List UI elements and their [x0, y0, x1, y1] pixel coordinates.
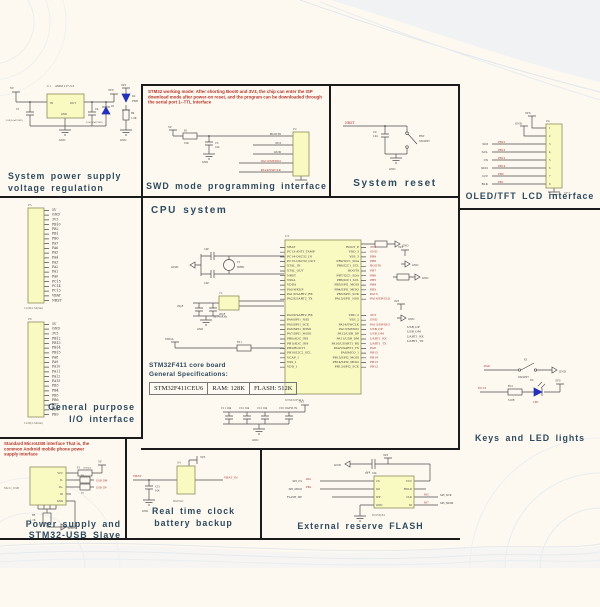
pin-label-swdio: PA13/SWDIO: [261, 159, 281, 163]
ref-des-u2: U2: [285, 234, 290, 238]
net-label-vbat: VBAT: [132, 474, 141, 478]
ref-des-u1: U1: [47, 84, 51, 88]
keys-wires: [480, 363, 564, 396]
value-c7: 20pF: [177, 305, 184, 308]
swd-connector: [293, 132, 309, 176]
net-label-5v: 5V: [168, 125, 173, 129]
ref-des-p5: P5: [28, 203, 32, 207]
panel-external-flash: GND C17 104 3V3 U4 W25Q32 CS SO WP GND V…: [262, 450, 459, 540]
crystal-8mhz: [224, 260, 235, 271]
net-label: PB14: [498, 164, 505, 168]
net-label-usb-dp: USB_DP: [96, 487, 107, 490]
pin-label-vcc: VCC: [405, 479, 412, 483]
gnd-label: GND: [389, 167, 395, 171]
usb-uart-net-labels: USB_DPUSB_DMUART1_RXUART1_TX: [407, 325, 452, 381]
ref-des-u4: U4: [366, 470, 370, 474]
label-led: LED: [533, 401, 538, 404]
net-label-vdda: VDDA: [164, 337, 175, 341]
value-c8: 20pF: [219, 313, 226, 316]
pin-label-out: OUT: [70, 101, 76, 105]
pin-label-clk: CLK: [406, 495, 412, 499]
power-panel-title-line2: voltage regulation: [8, 183, 104, 195]
pin-label-3v3: 3V3: [275, 141, 281, 145]
net-label: PB0: [498, 172, 504, 176]
gnd-label: GND: [412, 263, 418, 267]
net-label-pb4: PB4: [306, 486, 311, 489]
panel-divider: [329, 84, 331, 198]
panel-gpio-interface: P5 P6 1x20(2.54mm) 1x20(2.54mm) 5VGND3V3…: [0, 198, 141, 437]
reset-panel-title: System reset: [331, 178, 459, 190]
pin-label-dp: D+: [59, 486, 63, 489]
panel-divider: [141, 84, 143, 438]
ref-des-rst: RST: [419, 134, 425, 138]
net-label-pa0: PA0: [484, 364, 490, 368]
net-label: PB12: [370, 365, 410, 370]
gpio-wires: [44, 210, 49, 414]
ref-des-r5: R5: [32, 514, 36, 517]
pin-label-sdi: SDI: [482, 142, 488, 146]
ref-des-c1: C1: [16, 108, 20, 111]
net-label: PB13: [498, 148, 505, 152]
crystal-32khz: [219, 296, 239, 310]
gnd-label: GND: [59, 138, 65, 142]
lcd-panel-title: OLED/TFT LCD interface: [460, 191, 600, 203]
net-label: PB1: [498, 180, 504, 184]
usb-panel-title-line1: Power supply and: [26, 519, 121, 531]
net-label-spi-miso: SPI_MISO: [289, 487, 302, 491]
ref-des-r3: R3: [81, 492, 85, 495]
value-c1: 106(10uF/16V): [6, 119, 23, 122]
swd-wires: [169, 130, 307, 182]
value-c15: 104: [155, 490, 160, 493]
pin-label-sdo: SDO: [481, 166, 488, 170]
spec-cell: RAM: 128K: [208, 382, 250, 395]
label-pwr: PWR: [132, 100, 138, 103]
value-c5: 10P: [204, 248, 209, 251]
gpio-panel-title-line1: General purpose: [48, 402, 135, 414]
net-label-spi-sck: SPI_SCK: [440, 493, 452, 497]
swd-panel-title: SWD mode programming interface: [143, 181, 330, 193]
ref-des-c3: C3: [215, 142, 219, 145]
panel-divider: [0, 196, 460, 198]
panel-divider: [125, 437, 127, 540]
pin-label: PB13/SPI2_SCK: [289, 365, 359, 370]
keys-panel-title: Keys and LED lights: [460, 433, 600, 445]
protection-diode: [102, 107, 110, 114]
ref-des-r11: R11: [237, 341, 242, 344]
ref-des-d4: D4: [177, 461, 181, 465]
lcd-circuit: P4 3V3 GND SDI SCL CS SDO D/C BLK PB15 P…: [460, 88, 600, 200]
value-c17: 104: [372, 472, 377, 475]
panel-system-reset: NRST C9 104 RST SW-SPST GND System reset: [331, 86, 459, 196]
pin-label-scl: SCL: [482, 150, 488, 154]
connector-type-label: 1x20(2.54mm): [24, 306, 43, 310]
panel-usb-power: Standard MicroUSB interface That is, the…: [0, 439, 125, 540]
ref-des-y2: Y2: [218, 291, 223, 295]
value-c9: 104: [373, 135, 378, 138]
pin-label-swclk: PA14/SWCLK: [261, 168, 282, 172]
ref-des-f1: F1: [77, 467, 81, 470]
panel-divider: [141, 448, 460, 450]
net-label-3v3: 3V3: [383, 453, 389, 457]
net-label: PB12: [498, 156, 505, 160]
part-bat54c: BAT54C: [173, 499, 184, 503]
cap-label: C13 104: [257, 407, 268, 410]
net-label-3v3: 3V3: [555, 379, 561, 383]
value-8mhz: 8MHz: [237, 266, 245, 269]
panel-cpu-system: U2 STM32F411 GND 10P 10P Y1 8MHz Y2 32.7…: [143, 198, 459, 448]
panel-divider: [0, 538, 460, 540]
bat54c-diode: [177, 466, 195, 494]
gpio-panel-title-line2: I/O interface: [69, 414, 135, 426]
panel-divider: [458, 208, 600, 210]
ref-des-d3: D3: [530, 379, 534, 382]
spec-cell: STM32F411CEU6: [149, 382, 208, 395]
pin-label-gnd: GND: [274, 150, 282, 154]
pin-label-dm: D-: [60, 479, 63, 482]
pin-label-boot0: BOOT0: [270, 132, 281, 136]
gnd-label: GND: [334, 463, 342, 467]
ref-des-d2: D2: [132, 95, 136, 98]
rtc-panel-title-line2: battery backup: [127, 518, 260, 530]
ref-des-r4: R4: [131, 112, 135, 115]
panel-keys-leds: PA0 K1 SW-SPST GND PC13 R12 510R D3 LED …: [460, 210, 600, 468]
ref-des-p6: P6: [28, 317, 32, 321]
net-label: PB15: [498, 140, 505, 144]
gnd-label: GND: [202, 161, 208, 164]
net-label: PA14/SWCLK: [370, 297, 410, 302]
cap-label: C11 104: [221, 407, 232, 410]
schematic-canvas: 5V 3V3 U1 AMS1117-3.3 IN OUT GND C1 106(…: [0, 0, 600, 568]
net-label-3v3: 3V3: [108, 88, 114, 92]
gnd-label: GND: [252, 438, 258, 442]
gpio-connector-1: [28, 208, 44, 303]
panel-lcd-interface: P4 3V3 GND SDI SCL CS SDO D/C BLK PB15 P…: [460, 88, 600, 208]
panel-swd-interface: STM32 working mode: After shorting Boot0…: [143, 86, 330, 196]
panel-divider: [458, 86, 460, 450]
net-label-pa5: PA5: [424, 494, 429, 497]
value-r12: 510R: [508, 399, 515, 402]
pin-label-cs: CS: [376, 479, 380, 483]
cpu-panel-title: CPU system: [151, 205, 227, 217]
value-c3: 104: [215, 146, 220, 149]
ref-des-c9: C9: [373, 131, 377, 134]
pin-label-gnd: GND: [376, 503, 382, 507]
pin-label: PA15/SPI1_NSS: [289, 297, 359, 302]
panel-rtc-battery: VBAT C15 104 GND D4 3V3 VBAT_IN BAT54C R…: [127, 450, 260, 540]
ref-des-c4: C4: [95, 108, 99, 111]
net-label-usb-dm: USB_DM: [96, 480, 108, 483]
net-label-pc13: PC13: [478, 386, 486, 390]
net-label-3v3: 3V3: [200, 455, 206, 459]
net-label: NRST: [52, 298, 112, 303]
lcd-connector: [546, 124, 562, 188]
panel-divider: [141, 84, 460, 86]
net-label-flash-wp: FLASH_WP: [287, 495, 302, 499]
ref-des-c15: C15: [155, 486, 160, 489]
pin-label-di: DI: [409, 503, 412, 507]
label-micro-usb: Micro_USB: [4, 486, 19, 490]
general-specs-label: General Specifications:: [149, 371, 228, 378]
net-label-spi-cs: SPI_CS: [292, 479, 302, 483]
net-label-5v: 5V: [98, 460, 103, 464]
pin-label-id: ID: [60, 493, 63, 496]
gnd-label: GND: [559, 370, 567, 374]
gnd-label: GND: [120, 138, 126, 142]
value-c6: 10P: [204, 282, 209, 285]
part-w25q32: W25Q32: [372, 513, 385, 517]
power-panel-title-line1: System power supply: [8, 171, 121, 183]
pin-label-gnd: GND: [57, 500, 63, 503]
keys-circuit: PA0 K1 SW-SPST GND PC13 R12 510R D3 LED …: [460, 210, 600, 468]
spec-table: STM32F411CEU6RAM: 128KFLASH: 512K: [149, 382, 297, 395]
ref-des-y1: Y1: [236, 260, 241, 264]
spec-cell: FLASH: 512K: [250, 382, 297, 395]
net-label-gnd: GND: [515, 122, 523, 126]
rtc-panel-title-line1: Real time clock: [127, 506, 260, 518]
pin-label-dc: D/C: [482, 174, 488, 178]
pin-label-wp: WP: [376, 495, 381, 499]
net-label-vbat-in: VBAT_IN: [223, 476, 238, 480]
pin-label-blk: BLK: [482, 182, 489, 186]
net-label-pa7: PA7: [424, 502, 429, 505]
core-board-label: STM32F411 core board: [149, 362, 226, 369]
power-regulation-circuit: 5V 3V3 U1 AMS1117-3.3 IN OUT GND C1 106(…: [2, 76, 142, 172]
pin-label-vcc: VCC: [56, 472, 63, 475]
ref-des-p2: P2: [293, 127, 297, 131]
part-sw-spst: SW-SPST: [419, 140, 430, 143]
net-label-5v: 5V: [10, 86, 15, 90]
panel-divider: [0, 437, 143, 439]
ref-des-r12: R12: [508, 385, 513, 388]
net-label-pa4: PA4: [306, 478, 311, 481]
value-c4: 106(10uF/16V): [86, 121, 103, 124]
gpio-connector-2: [28, 322, 44, 417]
value-r1: 10K: [184, 142, 189, 145]
net-label-3v3: 3V3: [525, 111, 531, 115]
ref-des-p4: P4: [546, 119, 550, 123]
flash-panel-title: External reserve FLASH: [262, 521, 459, 533]
net-label-nrst: NRST: [345, 121, 355, 125]
panel-divider: [260, 448, 262, 540]
pin-label-gnd: GND: [61, 113, 67, 116]
reset-wires: [343, 126, 417, 163]
gnd-label: GND: [197, 328, 203, 331]
pin-label-cs: CS: [484, 158, 488, 162]
swd-circuit: 5V R1 10K C3 104 GND P2 BOOT0 3V3 GND PA…: [143, 86, 330, 182]
connector-type-label: 1x20(2.54mm): [24, 421, 43, 425]
part-ams1117: AMS1117-3.3: [54, 84, 75, 88]
value-f1: 500mA: [83, 467, 91, 470]
ref-des-k1: K1: [524, 358, 528, 362]
net-label-spi-mosi: SPI_MOSI: [440, 501, 453, 505]
ref-des-d1: D1: [111, 105, 115, 108]
value-r4: 1.0K: [131, 117, 137, 120]
net-label-led-3v3: 3V3: [121, 83, 127, 87]
gnd-label: GND: [171, 265, 179, 269]
net-label: UART1_TX: [407, 339, 452, 344]
cap-label: C12 104: [239, 407, 250, 410]
pin-label-so: SO: [376, 487, 380, 491]
led-d3: [534, 388, 542, 396]
power-led: [122, 94, 130, 102]
panel-power-regulation: 5V 3V3 U1 AMS1117-3.3 IN OUT GND C1 106(…: [2, 76, 142, 198]
part-sw-spst: SW-SPST: [518, 376, 529, 379]
pin-label-hold: HOLD: [404, 487, 412, 491]
reset-circuit: NRST C9 104 RST SW-SPST GND: [331, 86, 459, 178]
ref-des-r1: R1: [184, 130, 188, 133]
gnd-label: GND: [422, 276, 428, 280]
ref-des-r2: R2: [81, 474, 85, 477]
